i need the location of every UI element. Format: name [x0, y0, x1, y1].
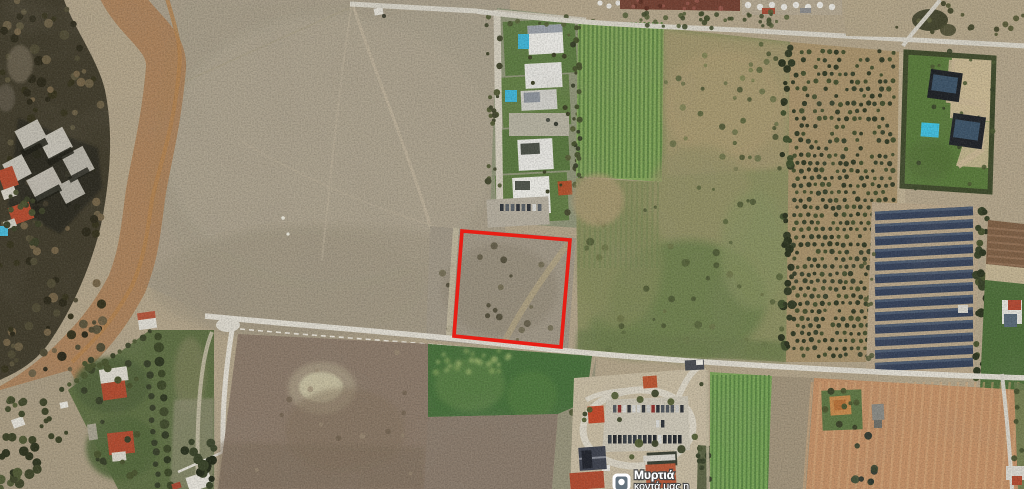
svg-text:κοντά μας η: κοντά μας η [634, 481, 689, 489]
